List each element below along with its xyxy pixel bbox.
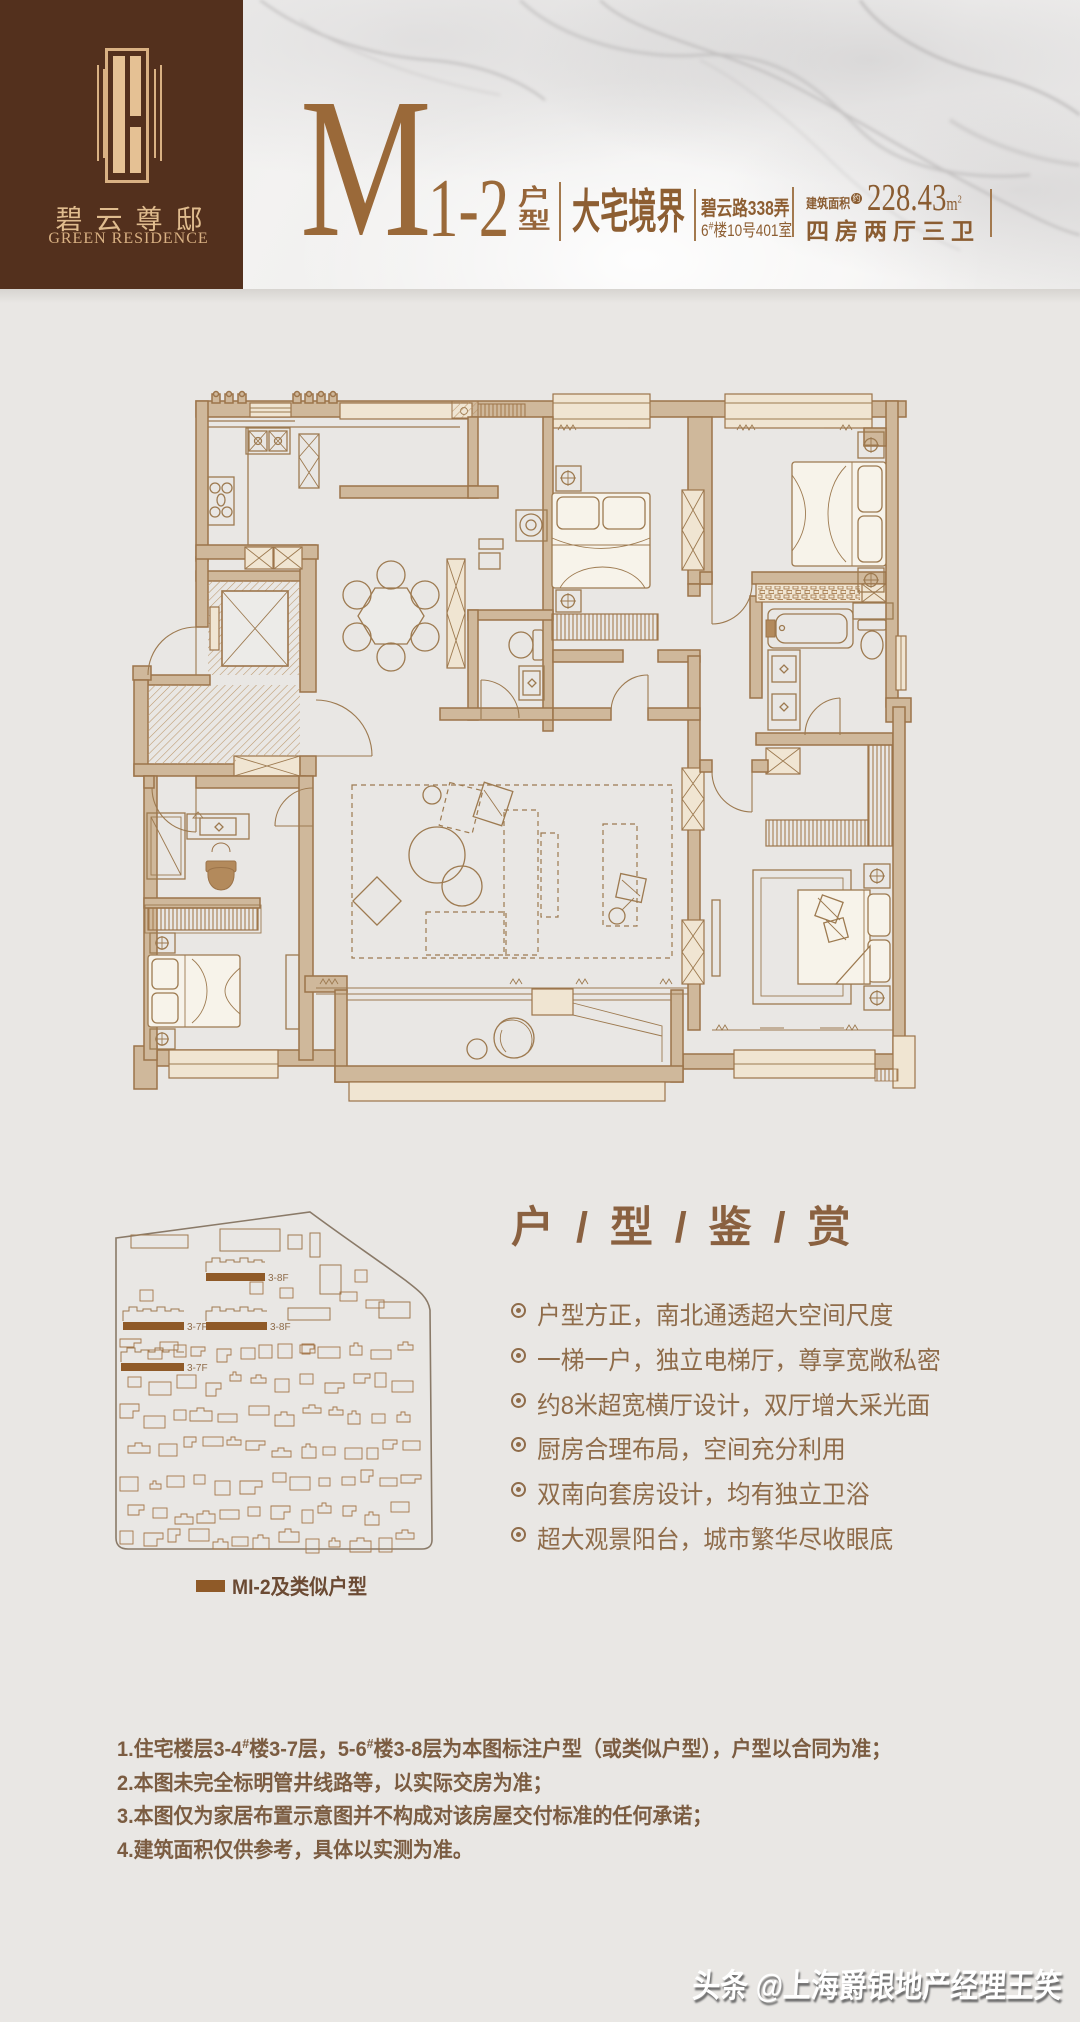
svg-text:MI-2及类似户型: MI-2及类似户型 <box>232 1575 367 1599</box>
svg-text:3-8F: 3-8F <box>268 1273 289 1284</box>
svg-text:3-7F: 3-7F <box>187 1363 208 1374</box>
svg-text:3-7F: 3-7F <box>187 1322 208 1333</box>
svg-text:3-8F: 3-8F <box>270 1322 291 1333</box>
